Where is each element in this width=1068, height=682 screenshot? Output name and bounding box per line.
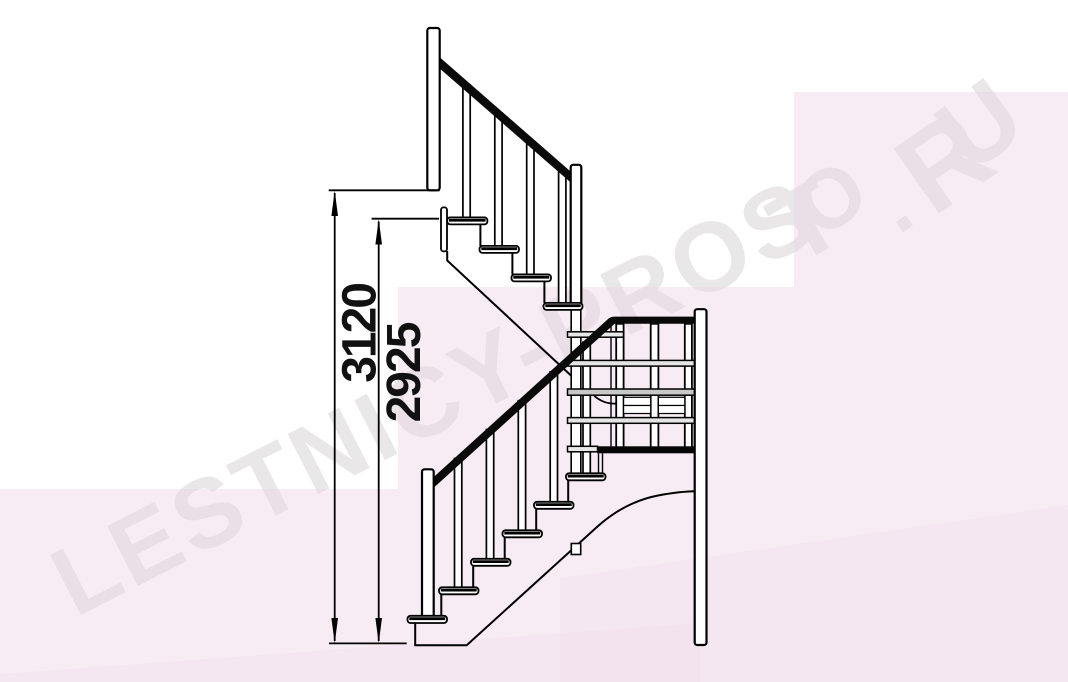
svg-text:2925: 2925 <box>378 322 431 422</box>
